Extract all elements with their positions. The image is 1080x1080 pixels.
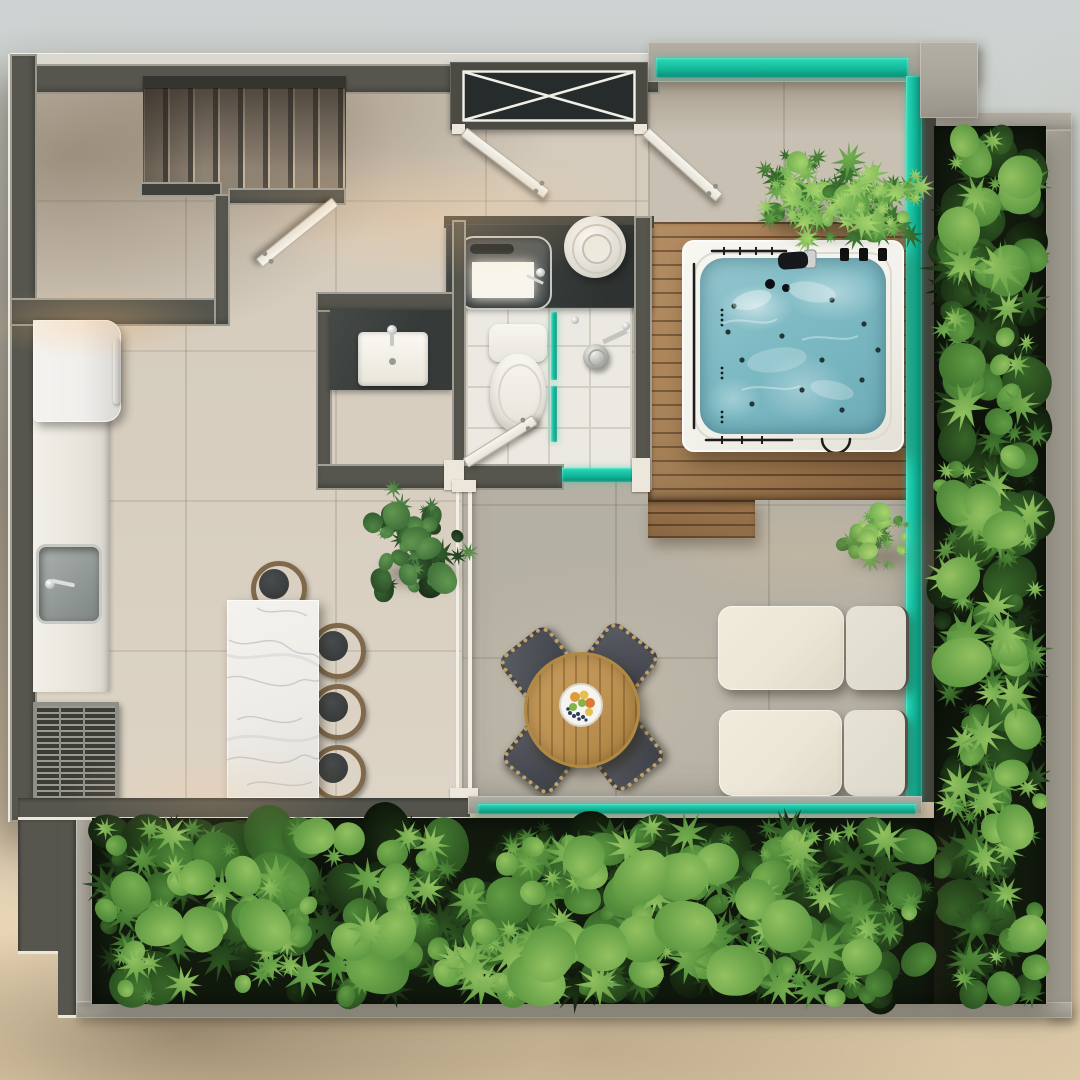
sofa-seat [718, 606, 844, 690]
wall-corridor-vertical [214, 194, 230, 326]
floor-plan-render: { "scene": { "type": "architectural floo… [0, 0, 1080, 1080]
leaf [897, 531, 910, 544]
vanity-sink-basin [472, 262, 534, 298]
vanity-sink [458, 236, 552, 310]
terrace-fern-2 [824, 150, 920, 244]
planter-curb-right [1046, 130, 1072, 1018]
wall-extension-b [58, 820, 76, 1018]
closet-x-icon [462, 70, 636, 122]
glass-railing-top [656, 58, 908, 78]
shower-head-ring [588, 349, 606, 367]
wood-deck-step [648, 500, 755, 538]
shower-head-icon [583, 344, 609, 370]
toilet-seat-line [498, 364, 542, 424]
kitchen-sink [36, 544, 102, 624]
shower-glass-1 [551, 312, 557, 380]
deck-plant [842, 502, 914, 568]
powder-drain [389, 358, 396, 365]
wall-powder-top [316, 292, 456, 312]
fridge-handle [113, 338, 120, 404]
vanity-sink-slot [470, 244, 514, 254]
sofa-ottoman [846, 606, 909, 690]
sliding-glass-door [562, 468, 636, 482]
vertical-garden-right [934, 126, 1046, 1004]
leaf [820, 226, 840, 246]
leaf [496, 852, 518, 875]
vanity-vessel-canister [564, 216, 626, 278]
interior-plant [366, 474, 466, 594]
stair-nosing [143, 76, 346, 88]
wall-bathroom-right [634, 216, 652, 490]
jacuzzi-details [682, 240, 904, 452]
marble-veins [227, 600, 319, 798]
vanity-faucet-icon [536, 268, 545, 277]
fruit-plate [558, 682, 604, 728]
grill-vent [33, 702, 119, 808]
vertical-garden-bottom [92, 818, 934, 1004]
deck-door-jamb [632, 458, 650, 492]
glass-railing-bottom [478, 804, 916, 814]
sofa-seat [719, 710, 842, 796]
leaf [449, 528, 466, 545]
terrace-parapet-corner [920, 42, 978, 118]
shower-valve-icon [571, 316, 579, 324]
closet-x [462, 70, 636, 122]
toilet-bowl [490, 354, 546, 432]
shower-glass-2 [551, 386, 557, 442]
powder-sink [358, 332, 428, 386]
stair-handrail [140, 182, 222, 197]
leaf [970, 910, 991, 935]
shower-valve-icon-2 [622, 322, 630, 330]
marble-island [227, 600, 319, 798]
sofa-ottoman [844, 710, 908, 796]
grill-divider-2 [83, 706, 85, 796]
staircase [143, 88, 346, 196]
canister-ring-inner [582, 234, 612, 264]
grill-divider [59, 706, 61, 796]
powder-faucet-stem [390, 334, 394, 346]
refrigerator [33, 320, 121, 422]
leaf [234, 975, 251, 993]
planter-curb-left [76, 818, 92, 1002]
wall-bathroom-divider [452, 220, 466, 490]
wall-extension-a [18, 820, 58, 954]
